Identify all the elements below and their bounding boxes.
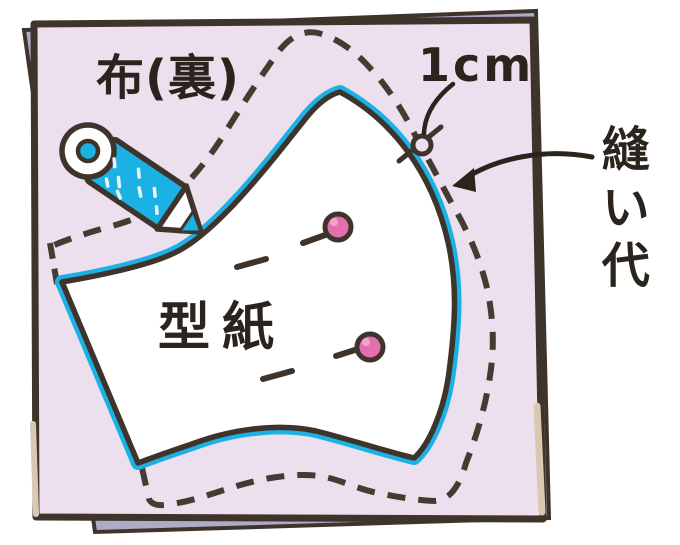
fabric-edge-beige-left: [33, 424, 36, 514]
fabric-edge-beige-right: [537, 406, 542, 512]
pin-1-head: [325, 214, 351, 240]
sewing-diagram: 布(裏) 1cm 型紙 縫い代: [0, 0, 680, 545]
seam-allowance-label: 縫い代: [594, 124, 647, 298]
fabric-label: 布(裏): [96, 52, 240, 105]
seam-width-ring: [413, 136, 431, 154]
pin-2-head: [357, 334, 383, 360]
pin-2-highlight: [362, 338, 370, 346]
seam-width-label: 1cm: [418, 40, 534, 91]
pattern-label: 型紙: [158, 300, 286, 357]
pin-1-highlight: [330, 218, 338, 226]
